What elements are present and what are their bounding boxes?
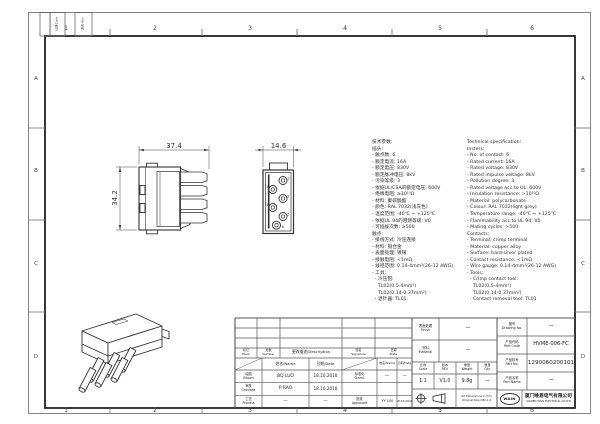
part-code-label: 产品代码 Part Code [497, 336, 527, 354]
zone-letter-right: C [578, 261, 588, 267]
rev-col-description: 更改描述/Description [280, 347, 342, 358]
zone-number-bottom: 1 [60, 407, 72, 414]
zone-letter-left: B [31, 168, 41, 174]
name-header-2: 姓名/Name [377, 358, 397, 370]
name-header-1: 姓名/Name [262, 358, 309, 370]
part-no-label: 产品料号 Part No. [497, 354, 527, 372]
drawn-date: 18.10.2010 [309, 370, 342, 383]
company-name: 厦门唯恩电气有限公司 XIAMEN WAIN ELECTRICAL CO.LTD [522, 390, 575, 408]
part-no-value: 1290060200101 [527, 354, 575, 372]
date-header-2: 日期/Date [397, 358, 412, 370]
checked-label: 审核 Checked [235, 383, 262, 395]
side-view: 37.4 34.2 [111, 142, 209, 234]
company-name-en: XIAMEN WAIN ELECTRICAL CO.LTD [526, 401, 570, 404]
zone-number-top: 5 [434, 25, 446, 32]
zone-number-top: 4 [339, 25, 351, 32]
spec-column-english: Technical specification:Insters:- No. of… [467, 140, 573, 304]
zone-number-top: 6 [526, 25, 538, 32]
rev-label: 版本 REV. [434, 362, 456, 374]
zone-number-top: 3 [244, 25, 256, 32]
zone-letter-right: D [578, 354, 588, 360]
zone-number-bottom: 6 [526, 407, 538, 414]
rev-value: V1.0 [434, 374, 456, 389]
drawn-name: BQ LUO [262, 370, 309, 383]
svg-text:2: 2 [266, 185, 268, 189]
zone-letter-left: C [31, 261, 41, 267]
process-label: 工艺 Process [235, 395, 262, 408]
weight-label: 重量 Weight [456, 362, 478, 374]
finish-label: 表面处理 Finish [412, 318, 439, 340]
material-label: 材料 Material [412, 340, 439, 362]
svg-text:1: 1 [287, 177, 289, 181]
company-name-cn: 厦门唯恩电气有限公司 [525, 394, 572, 399]
checked-date: 18.10.2010 [309, 383, 342, 395]
finish-value: — [439, 318, 497, 340]
spec-line: · 退针器: TL01 [372, 297, 466, 304]
approved-date: 18.10.2010 [397, 395, 412, 408]
zone-letter-left: D [31, 354, 41, 360]
scale-value: 1:1 [412, 374, 434, 389]
company-logo: WAIN [497, 390, 522, 408]
zone-number-bottom: 5 [434, 407, 446, 414]
part-name-value: — [527, 372, 575, 390]
zone-letter-right: B [578, 168, 588, 174]
process-name: — [262, 395, 309, 408]
weight-value: 9.8g [456, 374, 478, 389]
spec-line: · Contact removal tool: TL01 [467, 297, 573, 304]
crosshair-symbol-icon [416, 393, 427, 404]
spec-line: - 线径范围: 0.14-4mm²(26-12 AWG) [372, 264, 466, 271]
approved-label: 批准 Approved [342, 395, 377, 408]
face-view: 14.6 1 2 3 4 5 6 [255, 142, 301, 234]
revision-strip-date-box: 日期/Date [50, 12, 65, 36]
zone-number-bottom: 4 [339, 407, 351, 414]
drawn-label: 绘图 Drawn [235, 370, 262, 383]
part-code-value: HVME-006-FC [527, 336, 575, 354]
qty-label: 数量 Qty. [478, 362, 497, 374]
zone-number-top: 2 [149, 25, 161, 32]
checked-name: P RAO [262, 383, 309, 395]
first-angle-projection-icon [433, 394, 445, 403]
zone-letter-right: A [578, 76, 588, 82]
rev-col-date: 日期 Date [375, 347, 412, 358]
material-value: — [439, 340, 497, 362]
dim-height-side: 34.2 [111, 190, 119, 206]
wain-logo-icon: WAIN [500, 393, 520, 405]
dimensions-note: All Dimensions in mm Original Size DIN A… [456, 389, 497, 408]
spec-column-chinese: 技术参数:插头:- 触点数: 6- 额定电流: 16A- 额定电压: 830V-… [372, 140, 466, 304]
zone-number-bottom: 3 [244, 407, 256, 414]
svg-text:3: 3 [287, 195, 289, 199]
side-pins [181, 172, 208, 223]
dim-width-side: 37.4 [166, 142, 182, 150]
approved-name: YY LIN [377, 395, 397, 408]
rev-col-signature: 签名 Signature [342, 347, 375, 358]
stand-name: — [377, 370, 397, 383]
process-date: — [309, 395, 342, 408]
rev-col-number: 处数 Number [257, 347, 280, 358]
projection-symbols [416, 393, 446, 404]
zone-number-bottom: 2 [149, 407, 161, 414]
revision-strip-rev-box: 更改 Rev [75, 12, 92, 36]
stand-label: 标准化 Stand. [342, 370, 377, 383]
qty-value: — [478, 374, 497, 389]
engineering-drawing-sheet: 37.4 34.2 [0, 0, 600, 424]
drawing-no-label: 图号 Drawing No. [497, 318, 527, 336]
isometric-view [78, 314, 169, 393]
rev-col-mark: 标记 Mark [235, 347, 257, 358]
dim-width-face: 14.6 [271, 142, 287, 150]
svg-text:5: 5 [287, 213, 289, 217]
drawing-no-value: — [527, 318, 575, 336]
date-header-1: 日期/Date [309, 358, 342, 370]
part-name-label: 产品名称 Part Name [497, 372, 527, 390]
zone-letter-left: A [31, 76, 41, 82]
scale-label: 比例 Scale [412, 362, 434, 374]
stand-date: — [397, 370, 412, 383]
